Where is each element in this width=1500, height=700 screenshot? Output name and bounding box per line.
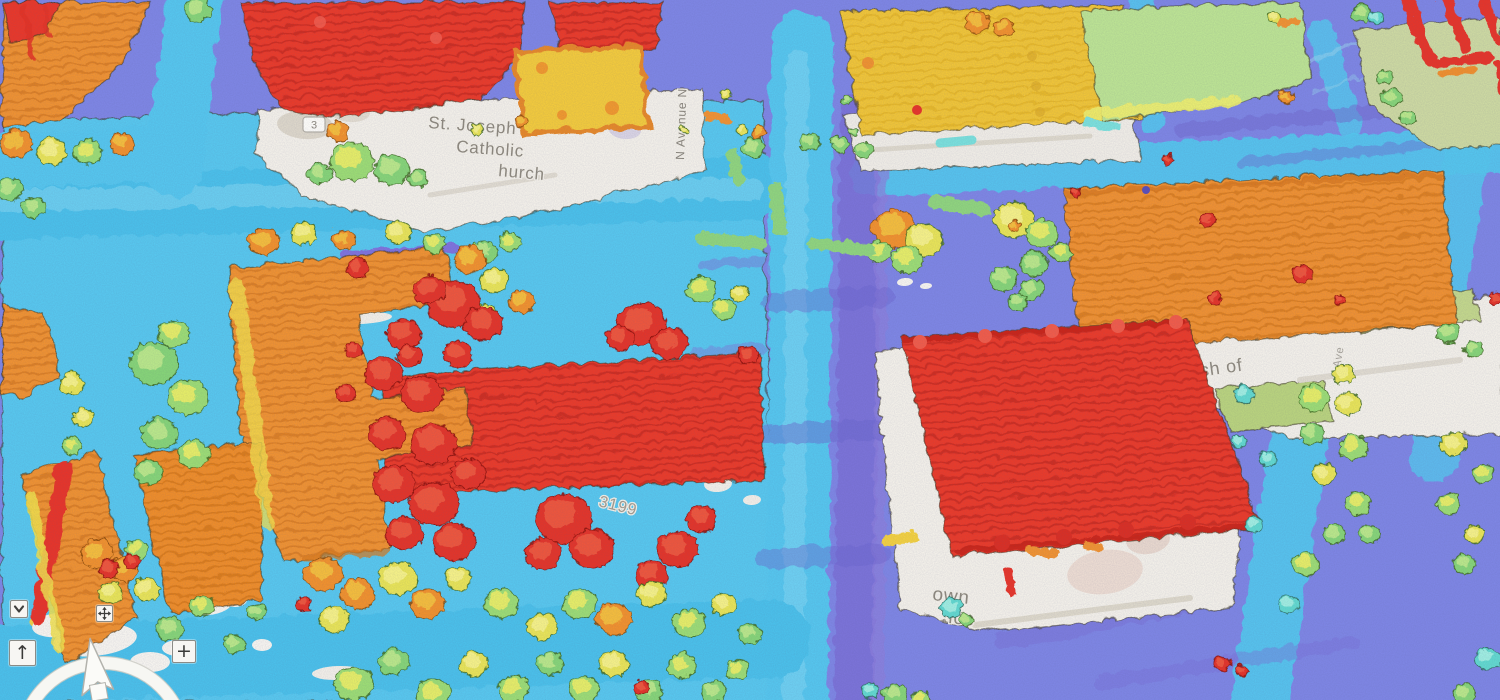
plus-glyph: + — [176, 642, 192, 661]
pan-move-icon — [97, 606, 112, 621]
point-cloud-speckle-texture — [0, 0, 1500, 700]
lidar-map-viewport[interactable]: St. Joseph'CatholichurchN Avenue N3199ec… — [0, 0, 1500, 700]
pan-mode-button[interactable] — [96, 605, 113, 622]
collapse-toolbar-button[interactable] — [10, 600, 28, 618]
chevron-down-icon — [12, 603, 26, 615]
zoom-in-button[interactable]: + — [172, 640, 196, 663]
up-arrow-glyph: ↑ — [15, 644, 31, 663]
reset-north-button[interactable]: ↑ — [9, 640, 36, 666]
point-cloud-map-canvas[interactable]: St. Joseph'CatholichurchN Avenue N3199ec… — [0, 0, 1500, 700]
